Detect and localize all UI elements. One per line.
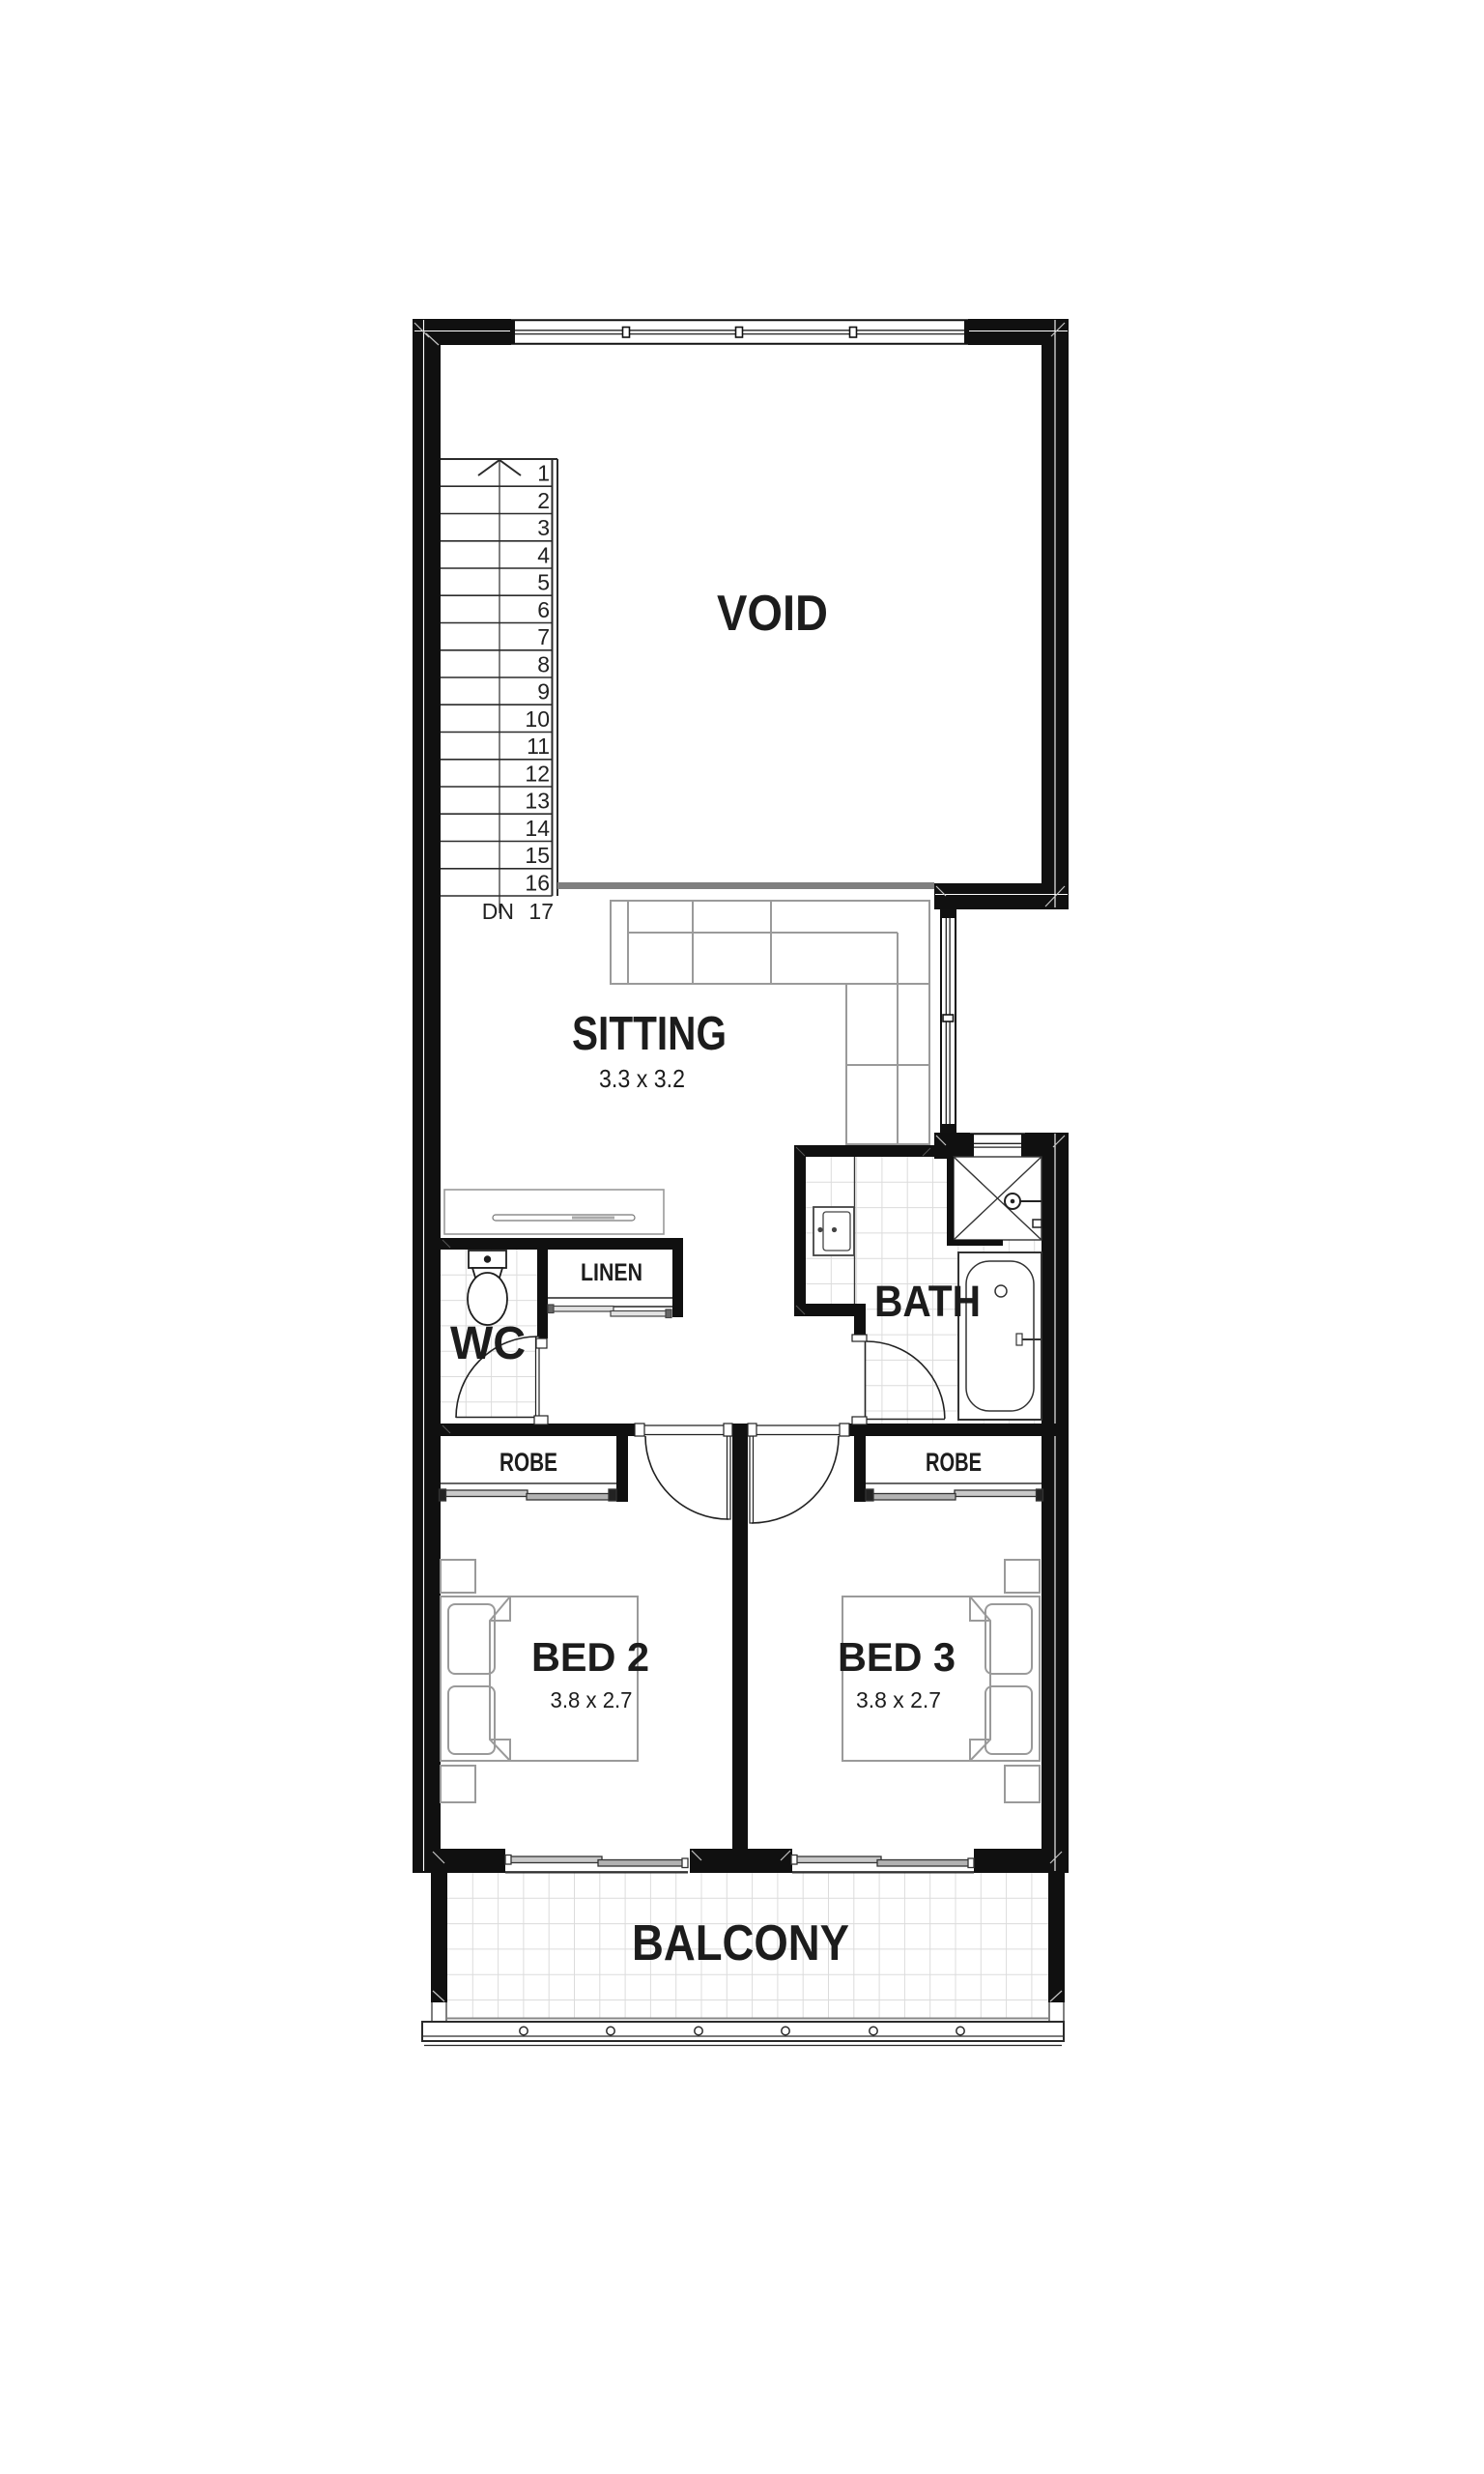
svg-text:4: 4 — [537, 542, 550, 567]
svg-text:10: 10 — [525, 706, 550, 732]
svg-text:15: 15 — [525, 843, 550, 868]
svg-text:2: 2 — [537, 488, 550, 513]
svg-text:ROBE: ROBE — [499, 1448, 557, 1477]
svg-text:ROBE: ROBE — [926, 1448, 982, 1477]
svg-text:3: 3 — [537, 515, 550, 540]
svg-text:DN: DN — [482, 899, 514, 924]
svg-text:11: 11 — [527, 734, 550, 759]
svg-text:7: 7 — [537, 624, 550, 649]
svg-text:BED 2: BED 2 — [531, 1634, 649, 1680]
svg-text:3.8 x 2.7: 3.8 x 2.7 — [551, 1687, 633, 1712]
svg-text:LINEN: LINEN — [581, 1259, 642, 1286]
svg-text:9: 9 — [537, 679, 550, 705]
svg-text:1: 1 — [537, 461, 550, 486]
svg-text:13: 13 — [525, 789, 550, 814]
svg-text:14: 14 — [525, 816, 550, 841]
svg-text:SITTING: SITTING — [572, 1008, 727, 1060]
svg-text:VOID: VOID — [717, 586, 828, 642]
svg-text:17: 17 — [528, 899, 554, 924]
svg-text:BATH: BATH — [874, 1277, 981, 1326]
svg-text:BED 3: BED 3 — [838, 1634, 956, 1680]
svg-text:3.8 x 2.7: 3.8 x 2.7 — [856, 1687, 941, 1712]
svg-text:8: 8 — [537, 651, 550, 676]
svg-text:12: 12 — [525, 761, 550, 786]
svg-text:6: 6 — [537, 597, 550, 622]
svg-text:5: 5 — [537, 570, 550, 595]
svg-text:BALCONY: BALCONY — [632, 1915, 849, 1971]
svg-text:16: 16 — [525, 870, 550, 895]
svg-text:WC: WC — [450, 1318, 526, 1369]
svg-text:3.3 x 3.2: 3.3 x 3.2 — [599, 1064, 685, 1093]
